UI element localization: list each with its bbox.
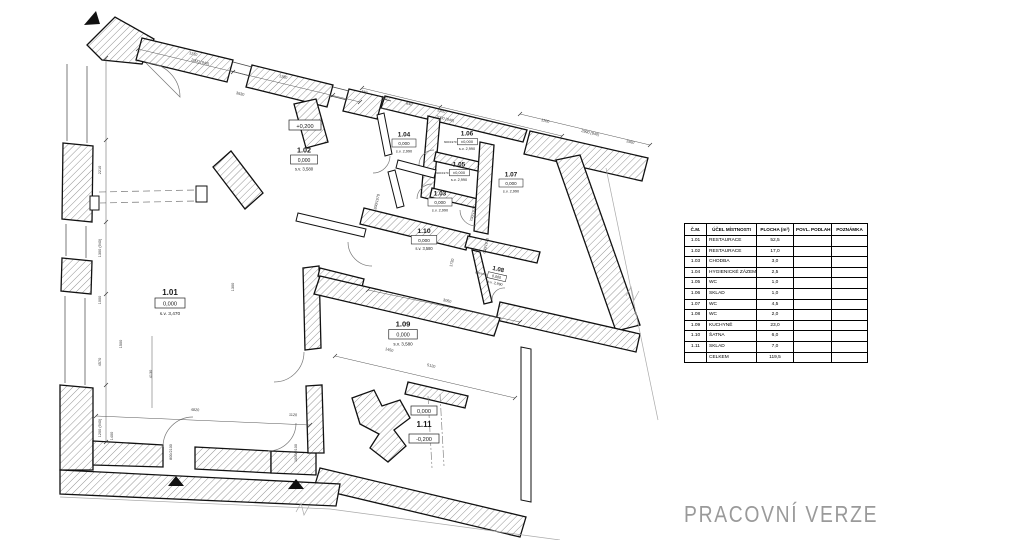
table-row: 1.02RESTAURACE17,0 <box>685 246 868 257</box>
svg-text:+0,200: +0,200 <box>296 124 313 130</box>
table-row: 1.08WC2,0 <box>685 310 868 321</box>
svg-text:1.09: 1.09 <box>396 320 411 329</box>
svg-text:1.10: 1.10 <box>417 228 430 235</box>
door-arc <box>163 417 193 447</box>
svg-text:4820: 4820 <box>191 408 200 412</box>
table-row: 1.05WC1,0 <box>685 278 868 289</box>
svg-text:s.v. 3,470: s.v. 3,470 <box>160 311 181 317</box>
svg-text:600/1970: 600/1970 <box>436 171 449 175</box>
svg-text:s.v. 2,990: s.v. 2,990 <box>459 147 475 151</box>
wall <box>93 441 163 467</box>
svg-text:1730: 1730 <box>449 258 455 267</box>
svg-text:1.01: 1.01 <box>162 288 178 297</box>
svg-text:1.07: 1.07 <box>505 172 518 179</box>
partition <box>377 113 392 156</box>
elevation-plus-200: +0,200 <box>289 120 321 130</box>
svg-text:4130: 4130 <box>149 370 153 378</box>
svg-text:1.05: 1.05 <box>453 162 466 169</box>
door-arc <box>274 352 304 382</box>
svg-text:1.06: 1.06 <box>461 131 474 138</box>
svg-text:0,000: 0,000 <box>396 333 409 339</box>
wall <box>303 266 321 350</box>
svg-text:1200: 1200 <box>541 118 550 124</box>
svg-text:1560: 1560 <box>626 139 635 145</box>
header-plocha: PLOCHA (m²) <box>757 224 794 236</box>
wall <box>314 468 526 537</box>
svg-text:2210: 2210 <box>98 166 102 174</box>
wall-notch <box>90 196 99 210</box>
wall <box>62 143 93 222</box>
wall <box>60 385 93 470</box>
svg-text:800/1970: 800/1970 <box>373 194 380 210</box>
partition <box>521 347 531 502</box>
header-poznamka: POZNÁMKA <box>832 224 868 236</box>
svg-text:1.04: 1.04 <box>398 132 411 139</box>
svg-text:0,000: 0,000 <box>298 158 311 164</box>
svg-text:1450: 1450 <box>385 347 394 353</box>
door-arc <box>492 288 505 300</box>
room-label-1-05: 1.05 600/1970 ±0,000 s.v. 2,990 <box>436 162 469 182</box>
svg-text:s.v. 3,580: s.v. 3,580 <box>415 246 433 251</box>
table-row: 1.01RESTAURACE52,5 <box>685 236 868 247</box>
table-row: 1.09KUCHYNĚ23,0 <box>685 320 868 331</box>
wall <box>474 142 494 234</box>
svg-text:1.02: 1.02 <box>297 145 311 154</box>
table-row: 1.04HYGIENICKÉ ZÁZEMÍ2,5 <box>685 267 868 278</box>
svg-text:s.v. 2,990: s.v. 2,990 <box>451 178 467 182</box>
wall <box>213 151 263 209</box>
room-label-1-09: 1.09 0,000 s.v. 3,580 <box>389 320 418 347</box>
svg-text:0,000: 0,000 <box>398 141 410 146</box>
header-povrch: POVL. PODLAH <box>794 224 832 236</box>
svg-text:1300: 1300 <box>231 283 235 291</box>
svg-text:s.v. 2,990: s.v. 2,990 <box>503 190 519 194</box>
svg-text:1000: 1000 <box>98 296 102 304</box>
table-total-row: CELKEM119,5 <box>685 352 868 363</box>
svg-text:s.v. 2,990: s.v. 2,990 <box>432 209 448 213</box>
svg-text:800/2100: 800/2100 <box>169 444 173 460</box>
room-label-1-01: 1.01 0,000 s.v. 3,470 <box>155 288 185 317</box>
room-label-1-11: 0,000 1.11 -0,200 <box>409 406 439 443</box>
room-label-1-02: 1.02 0,000 s.v. 3,580 <box>291 145 318 171</box>
svg-text:1200 (940): 1200 (940) <box>98 418 102 437</box>
wall <box>306 385 324 453</box>
watermark-text: PRACOVNÍ VERZE <box>684 501 878 528</box>
entrance-arrow-icon <box>84 11 100 25</box>
svg-text:0,000: 0,000 <box>418 238 430 244</box>
table-row: 1.10ŠATNA6,0 <box>685 331 868 342</box>
svg-text:3050: 3050 <box>443 298 452 304</box>
table-row: 1.03CHODBA3,0 <box>685 257 868 268</box>
svg-text:1.03: 1.03 <box>434 191 447 198</box>
room-table: Č.M. ÚČEL MÍSTNOSTI PLOCHA (m²) POVL. PO… <box>684 223 868 363</box>
svg-text:s.v. 2,990: s.v. 2,990 <box>396 150 412 154</box>
door-arc <box>373 156 390 173</box>
svg-text:1000/2100: 1000/2100 <box>294 444 298 462</box>
svg-text:1500: 1500 <box>119 340 123 348</box>
svg-text:±0,000: ±0,000 <box>453 170 466 175</box>
svg-text:5120: 5120 <box>427 363 436 369</box>
svg-text:1120: 1120 <box>289 413 297 417</box>
partition <box>388 170 404 208</box>
svg-text:2990 (940): 2990 (940) <box>581 129 601 137</box>
svg-text:s.v. 3,580: s.v. 3,580 <box>393 342 413 347</box>
svg-text:0,000: 0,000 <box>417 409 431 415</box>
wall <box>556 155 640 331</box>
partition <box>296 213 366 237</box>
wall <box>61 258 92 294</box>
svg-text:600/1970: 600/1970 <box>444 140 457 144</box>
wall <box>246 65 333 107</box>
svg-text:1300 (940): 1300 (940) <box>98 238 102 257</box>
table-row: 1.11SKLAD7,0 <box>685 341 868 352</box>
svg-text:-0,200: -0,200 <box>416 437 432 443</box>
svg-text:1400: 1400 <box>110 432 114 440</box>
page: 1210 2000 (940) 1280 3630 600 640 1220 2… <box>0 0 1024 540</box>
door-arc <box>268 423 296 451</box>
wall <box>405 382 468 408</box>
table-row: 1.06SKLAD1,0 <box>685 288 868 299</box>
svg-text:0,000: 0,000 <box>434 200 446 205</box>
svg-text:0,000: 0,000 <box>163 302 177 308</box>
room-label-1-04: 1.04 0,000 s.v. 2,990 <box>392 132 416 154</box>
svg-text:±0,000: ±0,000 <box>461 139 474 144</box>
wall <box>195 447 271 473</box>
room-label-1-07: 1.07 0,000 s.v. 2,990 <box>499 172 523 194</box>
chimney-structure <box>352 390 410 462</box>
svg-text:4570: 4570 <box>98 358 102 366</box>
floor-plan-svg: 1210 2000 (940) 1280 3630 600 640 1220 2… <box>0 0 660 540</box>
walls <box>60 17 648 537</box>
svg-text:1.11: 1.11 <box>416 420 432 429</box>
svg-text:s.v. 3,580: s.v. 3,580 <box>295 166 314 171</box>
wall-notch <box>196 186 207 202</box>
header-cm: Č.M. <box>685 224 707 236</box>
svg-text:0,000: 0,000 <box>505 181 517 186</box>
header-ucel: ÚČEL MÍSTNOSTI <box>707 224 757 236</box>
room-label-1-06: 1.06 600/1970 ±0,000 s.v. 2,990 <box>444 131 477 151</box>
door-arc <box>348 242 372 266</box>
table-header-row: Č.M. ÚČEL MÍSTNOSTI PLOCHA (m²) POVL. PO… <box>685 224 868 236</box>
table-row: 1.07WC4,5 <box>685 299 868 310</box>
svg-text:3630: 3630 <box>236 91 245 97</box>
